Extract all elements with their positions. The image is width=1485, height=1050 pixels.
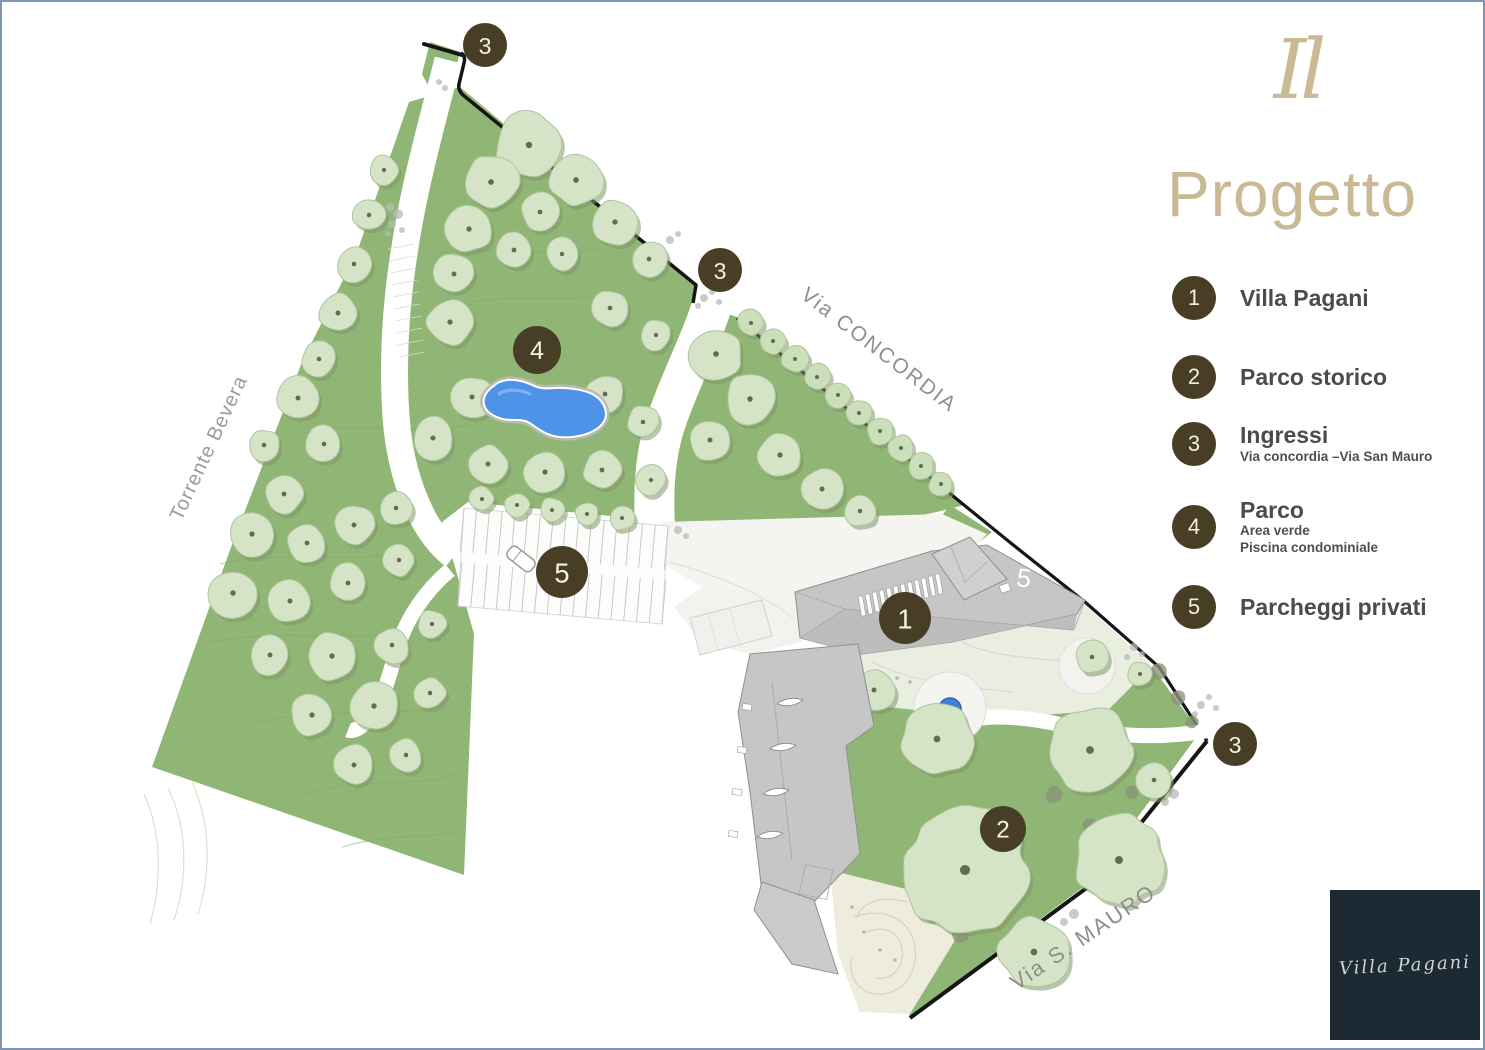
map-marker-1: 1 xyxy=(879,592,931,644)
map-marker-4: 4 xyxy=(513,326,561,374)
legend-label: Parco storico xyxy=(1240,364,1387,390)
svg-text:3: 3 xyxy=(714,258,727,284)
villa-pagani-logo: Villa Pagani xyxy=(1330,890,1480,1040)
map-marker-5: 5 xyxy=(536,546,588,598)
legend-badge-4: 4 xyxy=(1172,505,1216,549)
legend-item-ingressi: 3 Ingressi Via concordia –Via San Mauro xyxy=(1172,422,1432,466)
legend-badge-5: 5 xyxy=(1172,585,1216,629)
page-title: Progetto xyxy=(1142,162,1442,226)
slide: 53345123Via CONCORDIAVia S. MAUROTorrent… xyxy=(0,0,1485,1050)
svg-text:3: 3 xyxy=(1229,732,1242,758)
legend-label: Parco xyxy=(1240,497,1378,523)
legend-item-parco-storico: 2 Parco storico xyxy=(1172,355,1387,399)
legend-sublabel: Area verde xyxy=(1240,523,1378,540)
legend-item-parco: 4 Parco Area verde Piscina condominiale xyxy=(1172,497,1378,557)
villa-pagani-logo-text: Villa Pagani xyxy=(1339,951,1472,979)
legend-badge-3: 3 xyxy=(1172,422,1216,466)
legend-label: Ingressi xyxy=(1240,422,1432,448)
svg-text:1: 1 xyxy=(897,604,912,635)
map-marker-3: 3 xyxy=(698,248,742,292)
map-marker-2: 2 xyxy=(980,806,1026,852)
street-label: Torrente Bevera xyxy=(166,372,252,524)
svg-text:4: 4 xyxy=(530,337,544,365)
legend-item-villa-pagani: 1 Villa Pagani xyxy=(1172,276,1369,320)
svg-text:2: 2 xyxy=(996,817,1009,844)
map-marker-3: 3 xyxy=(463,23,507,67)
legend-label: Parcheggi privati xyxy=(1240,594,1427,620)
svg-text:5: 5 xyxy=(554,558,569,589)
legend-sublabel: Via concordia –Via San Mauro xyxy=(1240,449,1432,466)
legend-badge-2: 2 xyxy=(1172,355,1216,399)
legend-badge-1: 1 xyxy=(1172,276,1216,320)
legend-sublabel: Piscina condominiale xyxy=(1240,540,1378,557)
il-logo-mark: Il xyxy=(1217,30,1377,112)
legend-item-parcheggi: 5 Parcheggi privati xyxy=(1172,585,1427,629)
map-marker-3: 3 xyxy=(1213,722,1257,766)
svg-text:3: 3 xyxy=(479,33,492,59)
legend-label: Villa Pagani xyxy=(1240,285,1369,311)
